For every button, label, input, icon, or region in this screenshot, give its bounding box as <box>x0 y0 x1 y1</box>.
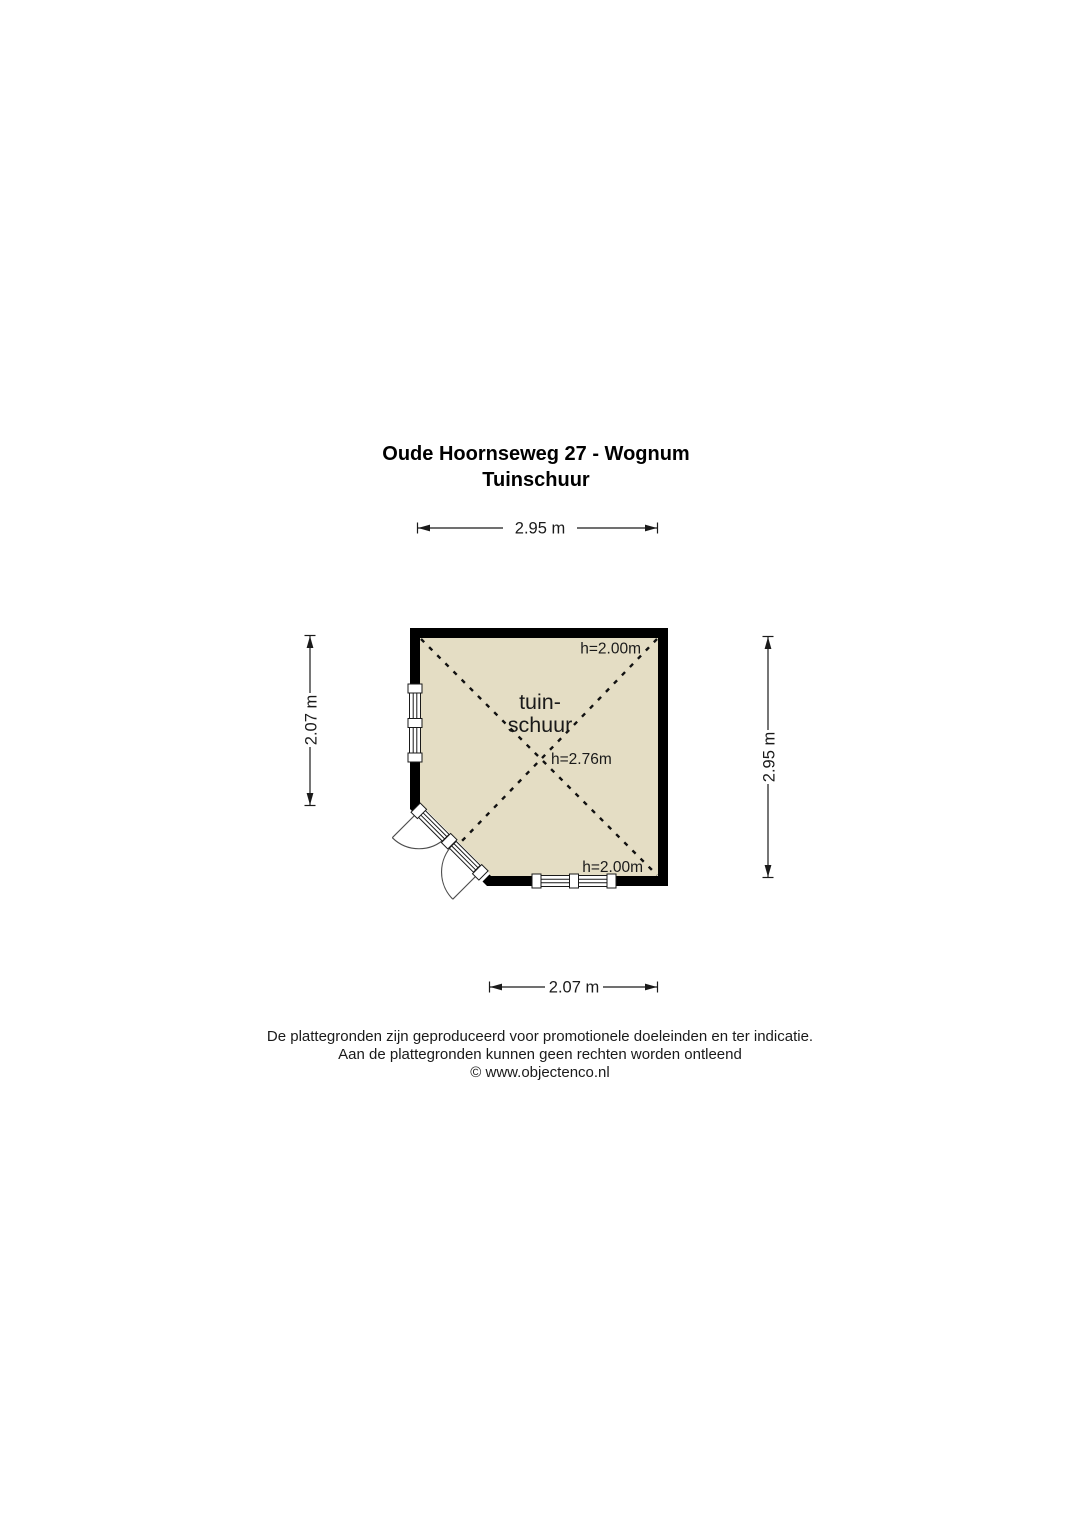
floorplan-page: Oude Hoornseweg 27 - Wognum Tuinschuur 2… <box>0 0 1080 1527</box>
dimension-bottom: 2.07 m <box>490 979 658 997</box>
door-swing-arc-upper <box>392 838 445 849</box>
dimension-label-left: 2.07 m <box>303 695 321 745</box>
dimension-label-top: 2.95 m <box>515 520 565 538</box>
footer-disclaimer: De plattegronden zijn geproduceerd voor … <box>0 1028 1080 1082</box>
dimension-label-right: 2.95 m <box>761 732 779 782</box>
door-swing-arc-lower <box>442 845 453 899</box>
ceiling-height-label-bottom: h=2.00m <box>582 859 643 876</box>
room-name-line2: schuur <box>508 713 573 737</box>
room-name-line1: tuin- <box>519 690 561 714</box>
ceiling-height-label-center: h=2.76m <box>551 751 612 768</box>
window-left <box>408 684 422 762</box>
dimension-left: 2.07 m <box>303 636 321 806</box>
ceiling-height-label-top: h=2.00m <box>580 641 641 658</box>
disclaimer-line-1: De plattegronden zijn geproduceerd voor … <box>0 1028 1080 1046</box>
dimension-right: 2.95 m <box>761 637 779 878</box>
shed-room: h=2.00m tuin- schuur h=2.76m h=2.00m <box>392 628 668 899</box>
dimension-label-bottom: 2.07 m <box>549 979 599 997</box>
floorplan-figure: 2.95 m 2.07 m 2.95 m <box>0 0 1080 1527</box>
window-bottom <box>532 874 616 888</box>
dimension-top: 2.95 m <box>418 520 658 538</box>
disclaimer-line-2: Aan de plattegronden kunnen geen rechten… <box>0 1046 1080 1064</box>
copyright-line: © www.objectenco.nl <box>0 1064 1080 1082</box>
